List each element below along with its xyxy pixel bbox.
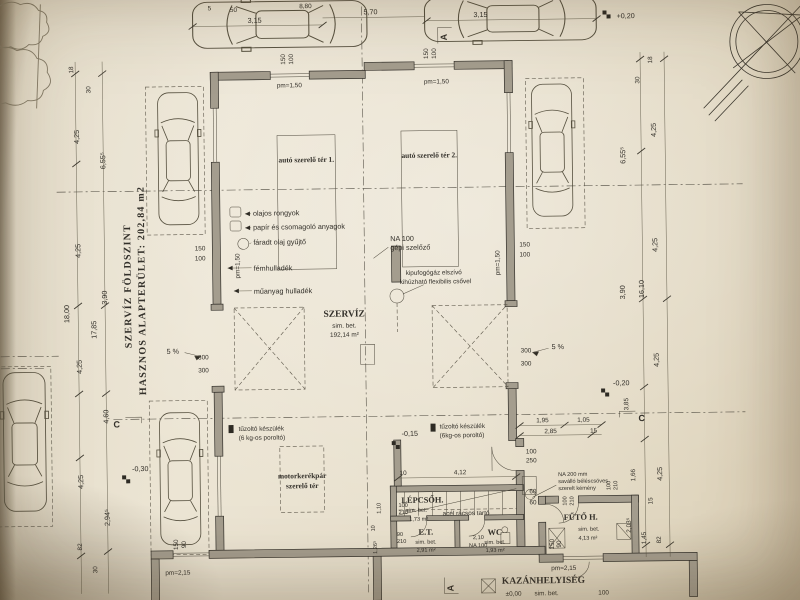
parapet-label: pm=1,50 bbox=[424, 78, 450, 85]
dimension-label: 18,00 bbox=[62, 305, 71, 323]
level-label: +0,20 bbox=[616, 11, 634, 20]
dimension-label: 50 bbox=[230, 7, 238, 14]
parked-car bbox=[156, 412, 204, 545]
north-arrow-icon bbox=[702, 0, 800, 121]
level-label: -0,15 bbox=[402, 429, 418, 438]
dimension-label: 4,25 bbox=[655, 467, 664, 481]
car-top-right bbox=[424, 0, 596, 45]
dimension-label: 6,55⁵ bbox=[98, 152, 107, 169]
floor-plan-drawing: SZERVÍZ FÖLDSZINT HASZNOS ALAPTERÜLET: 2… bbox=[0, 0, 800, 600]
dimension-label: 6,55⁵ bbox=[618, 147, 627, 164]
room-area: 2,91 m² bbox=[417, 548, 436, 554]
parked-car bbox=[154, 92, 202, 225]
dimension-label: 10 bbox=[371, 525, 377, 531]
dimension-label: 3,90 bbox=[618, 285, 627, 299]
vent-label: NA 100 bbox=[390, 234, 414, 243]
dimension-label: 100 bbox=[526, 448, 537, 455]
dimension-label: 150 bbox=[423, 48, 430, 59]
dimension-label: 210 bbox=[569, 496, 575, 505]
ramp-label: 5 % bbox=[552, 342, 565, 351]
chimney-label: szerelt kémény bbox=[558, 486, 596, 492]
dimension-label: 4,25 bbox=[73, 244, 82, 258]
dimension-label: 100 bbox=[562, 496, 568, 505]
room-finish: sim. bet. bbox=[332, 323, 356, 330]
dimension-label: 1,95 bbox=[536, 417, 549, 424]
dimension-label: 100 bbox=[398, 503, 407, 509]
exhaust-label: kihúzható flexibilis csővel bbox=[400, 278, 471, 286]
extinguisher-label: tűzoltó készülék bbox=[440, 423, 486, 431]
room-label-et: E.T. bbox=[418, 528, 433, 537]
section-label-c: C bbox=[638, 413, 645, 423]
dimension-label: 100 bbox=[519, 251, 530, 258]
parked-car bbox=[0, 372, 50, 511]
dimension-label: 5 bbox=[208, 5, 212, 12]
room-label-futo: FŰTŐ H. bbox=[564, 512, 598, 522]
dimension-label: 18 bbox=[647, 56, 654, 64]
extinguisher-label: (6 kg-os poroltó) bbox=[239, 434, 286, 442]
dimension-label: 150 bbox=[549, 538, 556, 549]
dimension-label: 4,25 bbox=[75, 360, 84, 374]
dimension-label: 300 bbox=[521, 347, 532, 354]
sheet-subtitle: HASZNOS ALAPTERÜLET: 202,84 m2 bbox=[134, 186, 150, 395]
dimension-label: 2,03⁵ bbox=[626, 517, 633, 533]
dimension-label: 100 bbox=[598, 589, 609, 596]
dimension-label: 1,45 bbox=[641, 531, 648, 544]
dimension-label: 17,85 bbox=[89, 321, 98, 339]
extinguisher-label: (6kg-os poroltó) bbox=[440, 432, 485, 440]
waste-label: műanyag hulladék bbox=[254, 286, 313, 296]
parapet-label: pm=2,15 bbox=[165, 570, 191, 577]
waste-label: fémhulladék bbox=[254, 263, 293, 272]
dimension-label: 4,25 bbox=[72, 130, 81, 144]
room-area: 1,73 m² bbox=[409, 517, 428, 523]
dimension-label: 16,10 bbox=[637, 280, 646, 298]
dimension-label: 100 bbox=[288, 53, 295, 64]
waste-icons bbox=[227, 207, 252, 294]
dimension-label: 100 bbox=[606, 481, 612, 490]
parapet-label: pm=1,50 bbox=[277, 82, 303, 89]
ramp-label: 5 % bbox=[167, 347, 180, 356]
level-symbols bbox=[117, 10, 617, 483]
dimension-label: 100 bbox=[431, 48, 438, 59]
dimension-lines bbox=[71, 14, 675, 594]
dimension-label: 210 bbox=[397, 539, 406, 545]
room-finish: sim. bet. bbox=[406, 508, 428, 514]
level-label: -0,30 bbox=[132, 464, 148, 473]
level-label: -0,20 bbox=[613, 378, 629, 387]
dimension-label: 15 bbox=[647, 497, 654, 505]
dimension-label: 30 bbox=[92, 566, 99, 574]
dimension-label: 5,70 bbox=[363, 7, 377, 16]
room-finish: sim. bet. bbox=[484, 540, 506, 546]
room-area: 1,93 m² bbox=[486, 548, 505, 554]
truss-label: acél rácsos tartó bbox=[443, 510, 490, 518]
dimension-label: 3,90 bbox=[100, 291, 109, 305]
dimension-label: 30 bbox=[634, 76, 641, 84]
section-label-a: A bbox=[445, 584, 455, 591]
room-label-szerviz: SZERVÍZ bbox=[323, 307, 365, 320]
dimension-label: 18 bbox=[68, 66, 75, 74]
dimension-label: 4,12 bbox=[454, 469, 467, 476]
dimension-label: 150 bbox=[195, 245, 206, 252]
room-finish: sim. bet. bbox=[578, 527, 600, 533]
dimension-label: 300 bbox=[198, 354, 209, 361]
room-area: 192,14 m² bbox=[330, 332, 359, 339]
vent-label: gépi szelőző bbox=[390, 243, 430, 252]
tree-sketch bbox=[0, 2, 51, 109]
dimension-label: 3,15 bbox=[473, 10, 487, 19]
dimension-label: 3,85 bbox=[623, 398, 630, 411]
room-finish: sim. bet. bbox=[415, 540, 437, 546]
dimension-label: 15 bbox=[590, 428, 598, 435]
room-label-bay2: autó szerelő tér 2. bbox=[401, 150, 457, 160]
exhaust-label: kipufogógáz elszívó bbox=[406, 269, 463, 277]
parapet-label: pm=2,15 bbox=[551, 565, 577, 572]
waste-label: papír és csomagoló anyagok bbox=[253, 222, 345, 232]
dimension-label: 90 bbox=[181, 541, 188, 549]
dimension-label: 2,10 bbox=[473, 535, 484, 541]
dimension-label: 150 bbox=[173, 539, 180, 550]
windows bbox=[167, 62, 603, 564]
dimension-label: 60 bbox=[529, 499, 537, 506]
dimension-label: 300 bbox=[521, 360, 532, 367]
room-label-wc: WC bbox=[488, 528, 503, 537]
dimension-label: 100 bbox=[195, 255, 206, 262]
ramp-arrows bbox=[185, 348, 549, 360]
parapet-label: pm=1,50 bbox=[234, 253, 241, 279]
dimension-label: 250 bbox=[526, 457, 537, 464]
blueprint-photo: SZERVÍZ FÖLDSZINT HASZNOS ALAPTERÜLET: 2… bbox=[0, 0, 800, 600]
dimension-label: 10 bbox=[400, 470, 408, 477]
section-label-c: C bbox=[113, 419, 120, 429]
room-area: 4,13 m² bbox=[578, 536, 597, 542]
dimension-label: 4,25 bbox=[649, 123, 658, 137]
dimension-label: 4,25 bbox=[76, 475, 85, 489]
dimension-label: 90 bbox=[556, 540, 563, 548]
room-level: ±0,00 bbox=[506, 591, 522, 598]
dimension-label: 30 bbox=[85, 86, 92, 94]
dimension-label: 1,26⁵ bbox=[372, 541, 379, 554]
dimension-label: 210 bbox=[613, 481, 619, 490]
chimney-label: saválló béléscsöves bbox=[558, 478, 608, 485]
dimension-label: 4,60 bbox=[101, 410, 110, 424]
parapet-label: pm=1,50 bbox=[494, 250, 501, 276]
waste-label: fáradt olaj gyűjtő bbox=[253, 237, 306, 247]
sheet-title: SZERVÍZ FÖLDSZINT bbox=[120, 224, 135, 348]
dimension-label: 8,80 bbox=[299, 3, 312, 10]
room-label-kazan: KAZÁNHELYISÉG bbox=[502, 574, 586, 587]
room-label-bay1: autó szerelő tér 1. bbox=[278, 155, 334, 165]
room-label-moto: szerelő tér bbox=[286, 481, 319, 490]
dimension-label: 2,94⁵ bbox=[103, 509, 112, 526]
dimension-label: 300 bbox=[198, 367, 209, 374]
dimension-label: 210 bbox=[399, 510, 408, 516]
dimension-label: 1,66 bbox=[630, 468, 637, 481]
dimension-label: 4,25 bbox=[652, 353, 661, 367]
dimension-label: 82 bbox=[656, 536, 663, 544]
room-label-moto: motorkerékpár bbox=[278, 471, 327, 481]
section-label-a: A bbox=[439, 33, 449, 40]
dimension-label: 4,25 bbox=[650, 238, 659, 252]
gate-swing-areas bbox=[234, 305, 508, 390]
dimension-label: 82 bbox=[77, 543, 84, 551]
dimension-label: 60 bbox=[529, 488, 537, 495]
dimension-label: 90 bbox=[397, 532, 403, 538]
waste-label: olajos rongyok bbox=[253, 208, 300, 218]
dimension-label: 150 bbox=[519, 241, 530, 248]
extinguisher-label: tűzoltó készülék bbox=[239, 425, 285, 433]
dimension-label: 3,15 bbox=[248, 16, 262, 25]
dimension-label: 1,10 bbox=[376, 503, 382, 514]
wc-vent-label: NA 100 bbox=[469, 543, 487, 549]
dimension-label: 1,05 bbox=[577, 417, 590, 424]
dimension-label: 2,85 bbox=[544, 428, 557, 435]
parked-car bbox=[528, 84, 576, 217]
dimension-label: 150 bbox=[280, 54, 287, 65]
room-finish: sim. bet. bbox=[534, 590, 558, 597]
chimney-label: NA 200 mm bbox=[558, 472, 588, 478]
